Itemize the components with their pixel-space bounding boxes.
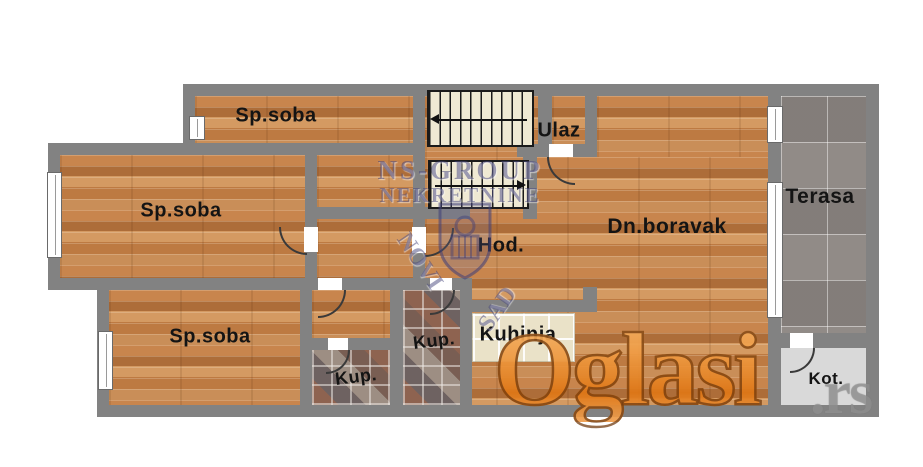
wall — [48, 143, 425, 155]
wall — [585, 96, 597, 149]
window-bedroom-bottom — [98, 331, 113, 390]
room-label-bedroom-top: Sp.soba — [235, 105, 316, 128]
wall — [48, 278, 318, 290]
window-terrace-door — [767, 182, 783, 318]
room-label-bedroom-middle: Sp.soba — [140, 200, 221, 223]
door-gap-boiler — [790, 333, 813, 348]
room-label-living-room: Dn.boravak — [607, 215, 726, 239]
floor-terrace — [781, 96, 866, 333]
wall — [583, 287, 597, 300]
wall — [460, 278, 472, 405]
floor-plan: Sp.soba Sp.soba Sp.soba Ulaz Dn.boravak … — [0, 0, 923, 467]
door-gap-bathroom-small — [328, 338, 348, 350]
wall — [97, 405, 879, 417]
agency-shield-icon — [436, 200, 494, 282]
stair-direction-line — [434, 119, 527, 121]
wall — [390, 278, 403, 405]
window-bedroom-middle — [47, 172, 62, 258]
staircase-upper — [427, 90, 534, 147]
room-label-bedroom-bottom: Sp.soba — [169, 326, 250, 349]
wall — [768, 333, 866, 348]
stair-arrow-left-icon — [430, 114, 439, 124]
window-bedroom-top — [189, 116, 205, 140]
agency-watermark: NS-GROUP NEKRETNINE — [345, 156, 575, 206]
window-terrace-upper — [767, 106, 783, 143]
room-label-entrance: Ulaz — [537, 120, 580, 143]
agency-name-text: NS-GROUP — [345, 156, 575, 184]
room-label-terrace: Terasa — [785, 185, 854, 209]
door-gap-vestibule — [318, 278, 342, 290]
wall — [300, 338, 328, 350]
portal-tld-watermark: .rs — [810, 362, 871, 424]
portal-watermark: Oglasi — [494, 318, 759, 422]
